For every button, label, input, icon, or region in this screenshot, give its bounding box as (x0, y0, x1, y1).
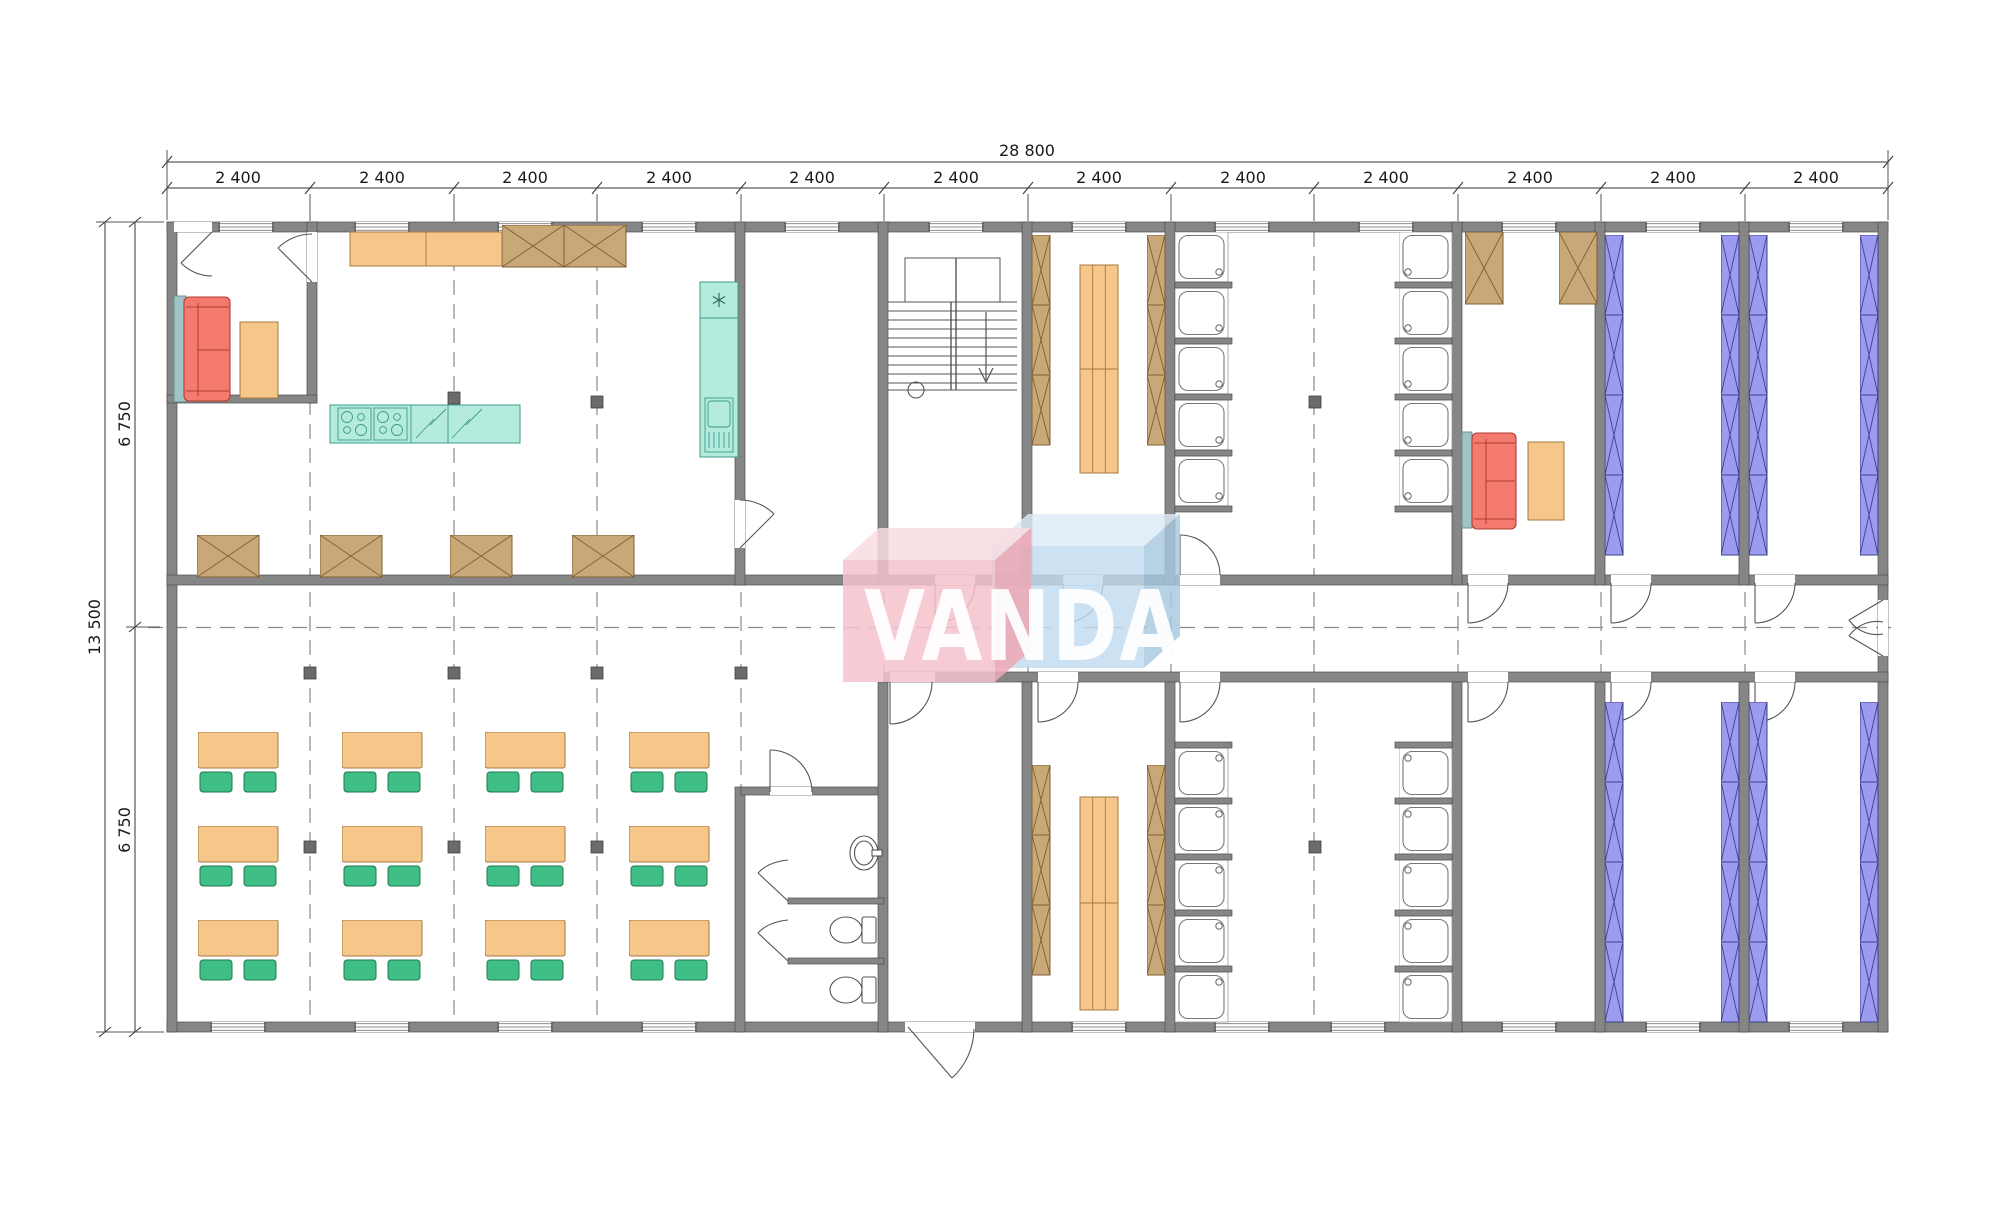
office-kitchen-door (278, 232, 317, 282)
window (1501, 1022, 1557, 1032)
changing-bottom-wall-right (1165, 682, 1175, 1032)
locker-strip (1147, 905, 1165, 975)
bed (1749, 782, 1767, 862)
kitchen-hall-door (735, 500, 774, 548)
window (218, 222, 274, 232)
bed (1749, 315, 1767, 395)
washroom-top (1175, 232, 1452, 512)
locker-strip (1147, 765, 1165, 835)
dining-table-set (485, 896, 565, 980)
floor-plan-page: 28 800 2 400 2 400 2 400 2 400 2 400 2 4… (0, 0, 2000, 1216)
office-room (174, 296, 278, 402)
locker-strip (1147, 835, 1165, 905)
wc-room (830, 836, 882, 1003)
window (1501, 222, 1557, 232)
dim-module-3: 2 400 (502, 168, 548, 187)
locker-box (450, 535, 512, 577)
bed (1860, 475, 1878, 555)
window (1645, 1022, 1701, 1032)
locker-strip (1032, 765, 1050, 835)
window (641, 222, 697, 232)
bed (1605, 315, 1623, 395)
window (1645, 222, 1701, 232)
window (1330, 1022, 1386, 1032)
dining-table-set (629, 802, 709, 886)
washroom-top-wall-right (1452, 222, 1462, 585)
store-room-door (1468, 672, 1508, 722)
bed (1749, 475, 1767, 555)
wc-wall-right (878, 682, 888, 1032)
bed (1721, 862, 1739, 942)
bed (1860, 862, 1878, 942)
bed (1721, 702, 1739, 782)
bed (1721, 315, 1739, 395)
window (784, 222, 840, 232)
lounge-room (1462, 232, 1597, 529)
bench (1080, 265, 1118, 473)
wc-stall-wall-2 (788, 958, 884, 964)
wc-stall-doors (758, 860, 788, 961)
entrance-door (905, 1022, 975, 1078)
dining-table-set (342, 896, 422, 980)
dining-table-set (485, 708, 565, 792)
floor-plan-canvas: 28 800 2 400 2 400 2 400 2 400 2 400 2 4… (0, 0, 2000, 1216)
vanda-logo: VANDA (843, 514, 1182, 683)
locker-strip (1147, 305, 1165, 375)
sofa (184, 297, 230, 401)
window (354, 1022, 410, 1032)
washbasin-icon (850, 836, 882, 870)
locker-strip (1032, 305, 1050, 375)
bench (1080, 797, 1118, 1010)
locker-strip (1147, 375, 1165, 445)
office-entry-door (174, 222, 212, 276)
bed (1860, 942, 1878, 1022)
washroom-top-door (1180, 535, 1220, 585)
toilet-icon (830, 977, 876, 1003)
dining-table-set (198, 802, 278, 886)
window (1071, 222, 1127, 232)
fridge-unit (700, 282, 738, 457)
bed (1860, 702, 1878, 782)
bedroom1-top-door (1611, 575, 1651, 623)
dim-module-10: 2 400 (1507, 168, 1553, 187)
store-room-wall-right (1595, 682, 1605, 1032)
window (497, 1022, 553, 1032)
logo-text: VANDA (864, 570, 1182, 683)
bed (1860, 782, 1878, 862)
bed (1749, 702, 1767, 782)
washroom-bottom-door (1180, 672, 1220, 722)
bed (1860, 315, 1878, 395)
bed (1749, 862, 1767, 942)
dining-wall-right (735, 787, 745, 1032)
bed (1605, 395, 1623, 475)
wardrobe-cabinet (1559, 232, 1597, 304)
wardrobe-cabinet (1465, 232, 1503, 304)
sofa-back (1462, 432, 1472, 528)
locker-box (572, 535, 634, 577)
locker-strip (1032, 235, 1050, 305)
dining-table-set (629, 708, 709, 792)
washroom-bottom-wall-right (1452, 682, 1462, 1032)
window (354, 222, 410, 232)
bed (1749, 942, 1767, 1022)
locker-strip (1147, 235, 1165, 305)
locker-strip (1032, 375, 1050, 445)
bed (1721, 235, 1739, 315)
dining-table-set (198, 896, 278, 980)
window (1358, 222, 1414, 232)
dim-total-width: 28 800 (999, 141, 1055, 160)
dim-module-7: 2 400 (1076, 168, 1122, 187)
bedroom-1-top (1605, 235, 1739, 555)
bedroom2-top-door (1755, 575, 1795, 623)
window (928, 222, 984, 232)
dim-module-2: 2 400 (359, 168, 405, 187)
dim-module-6: 2 400 (933, 168, 979, 187)
dim-module-9: 2 400 (1363, 168, 1409, 187)
bed (1605, 235, 1623, 315)
wc-room-door (770, 750, 812, 795)
window (1788, 1022, 1844, 1032)
bed (1860, 235, 1878, 315)
wc-stall-wall-1 (788, 898, 884, 904)
dining-table-set (629, 896, 709, 980)
bed (1605, 782, 1623, 862)
locker-box (197, 535, 259, 577)
bed (1605, 862, 1623, 942)
window (1071, 1022, 1127, 1032)
dim-module-12: 2 400 (1793, 168, 1839, 187)
window (1214, 1022, 1270, 1032)
dim-half-depth-top: 6 750 (115, 401, 134, 447)
window (210, 1022, 266, 1032)
dining-table-set (342, 708, 422, 792)
changing-room-bottom (1032, 765, 1165, 1010)
wardrobe-cabinet (502, 225, 564, 267)
stairwell (888, 258, 1017, 398)
side-table (1528, 442, 1564, 520)
bed (1749, 395, 1767, 475)
dim-module-5: 2 400 (789, 168, 835, 187)
lounge-door (1468, 575, 1508, 623)
dim-module-8: 2 400 (1220, 168, 1266, 187)
bed (1721, 782, 1739, 862)
window (1214, 222, 1270, 232)
window (641, 1022, 697, 1032)
wardrobe-cabinet (564, 225, 626, 267)
bedroom-2-top (1749, 235, 1878, 555)
side-table (240, 322, 278, 398)
bed (1721, 395, 1739, 475)
bedroom-1-bottom (1605, 702, 1739, 1022)
dim-total-depth: 13 500 (85, 599, 104, 655)
dim-module-11: 2 400 (1650, 168, 1696, 187)
bedroom-2-bottom (1749, 702, 1878, 1022)
bed (1605, 942, 1623, 1022)
dim-half-depth-bottom: 6 750 (115, 807, 134, 853)
dim-module-1: 2 400 (215, 168, 261, 187)
dining-table-set (342, 802, 422, 886)
locker-strip (1032, 905, 1050, 975)
bed (1605, 475, 1623, 555)
dim-module-4: 2 400 (646, 168, 692, 187)
dining-table-set (485, 802, 565, 886)
bed (1860, 395, 1878, 475)
changing-room-top (1032, 235, 1165, 473)
dining-table-set (198, 708, 278, 792)
window (1788, 222, 1844, 232)
locker-box (320, 535, 382, 577)
bed (1721, 942, 1739, 1022)
stair-treads (888, 302, 1017, 390)
bed (1721, 475, 1739, 555)
bed (1605, 702, 1623, 782)
kitchen-island (330, 405, 520, 443)
toilet-icon (830, 917, 876, 943)
bedroom-partition-bottom (1739, 682, 1749, 1032)
vestibule-wall-right (1022, 682, 1032, 1032)
bed (1749, 235, 1767, 315)
bedroom-partition-top (1739, 222, 1749, 585)
locker-strip (1032, 835, 1050, 905)
